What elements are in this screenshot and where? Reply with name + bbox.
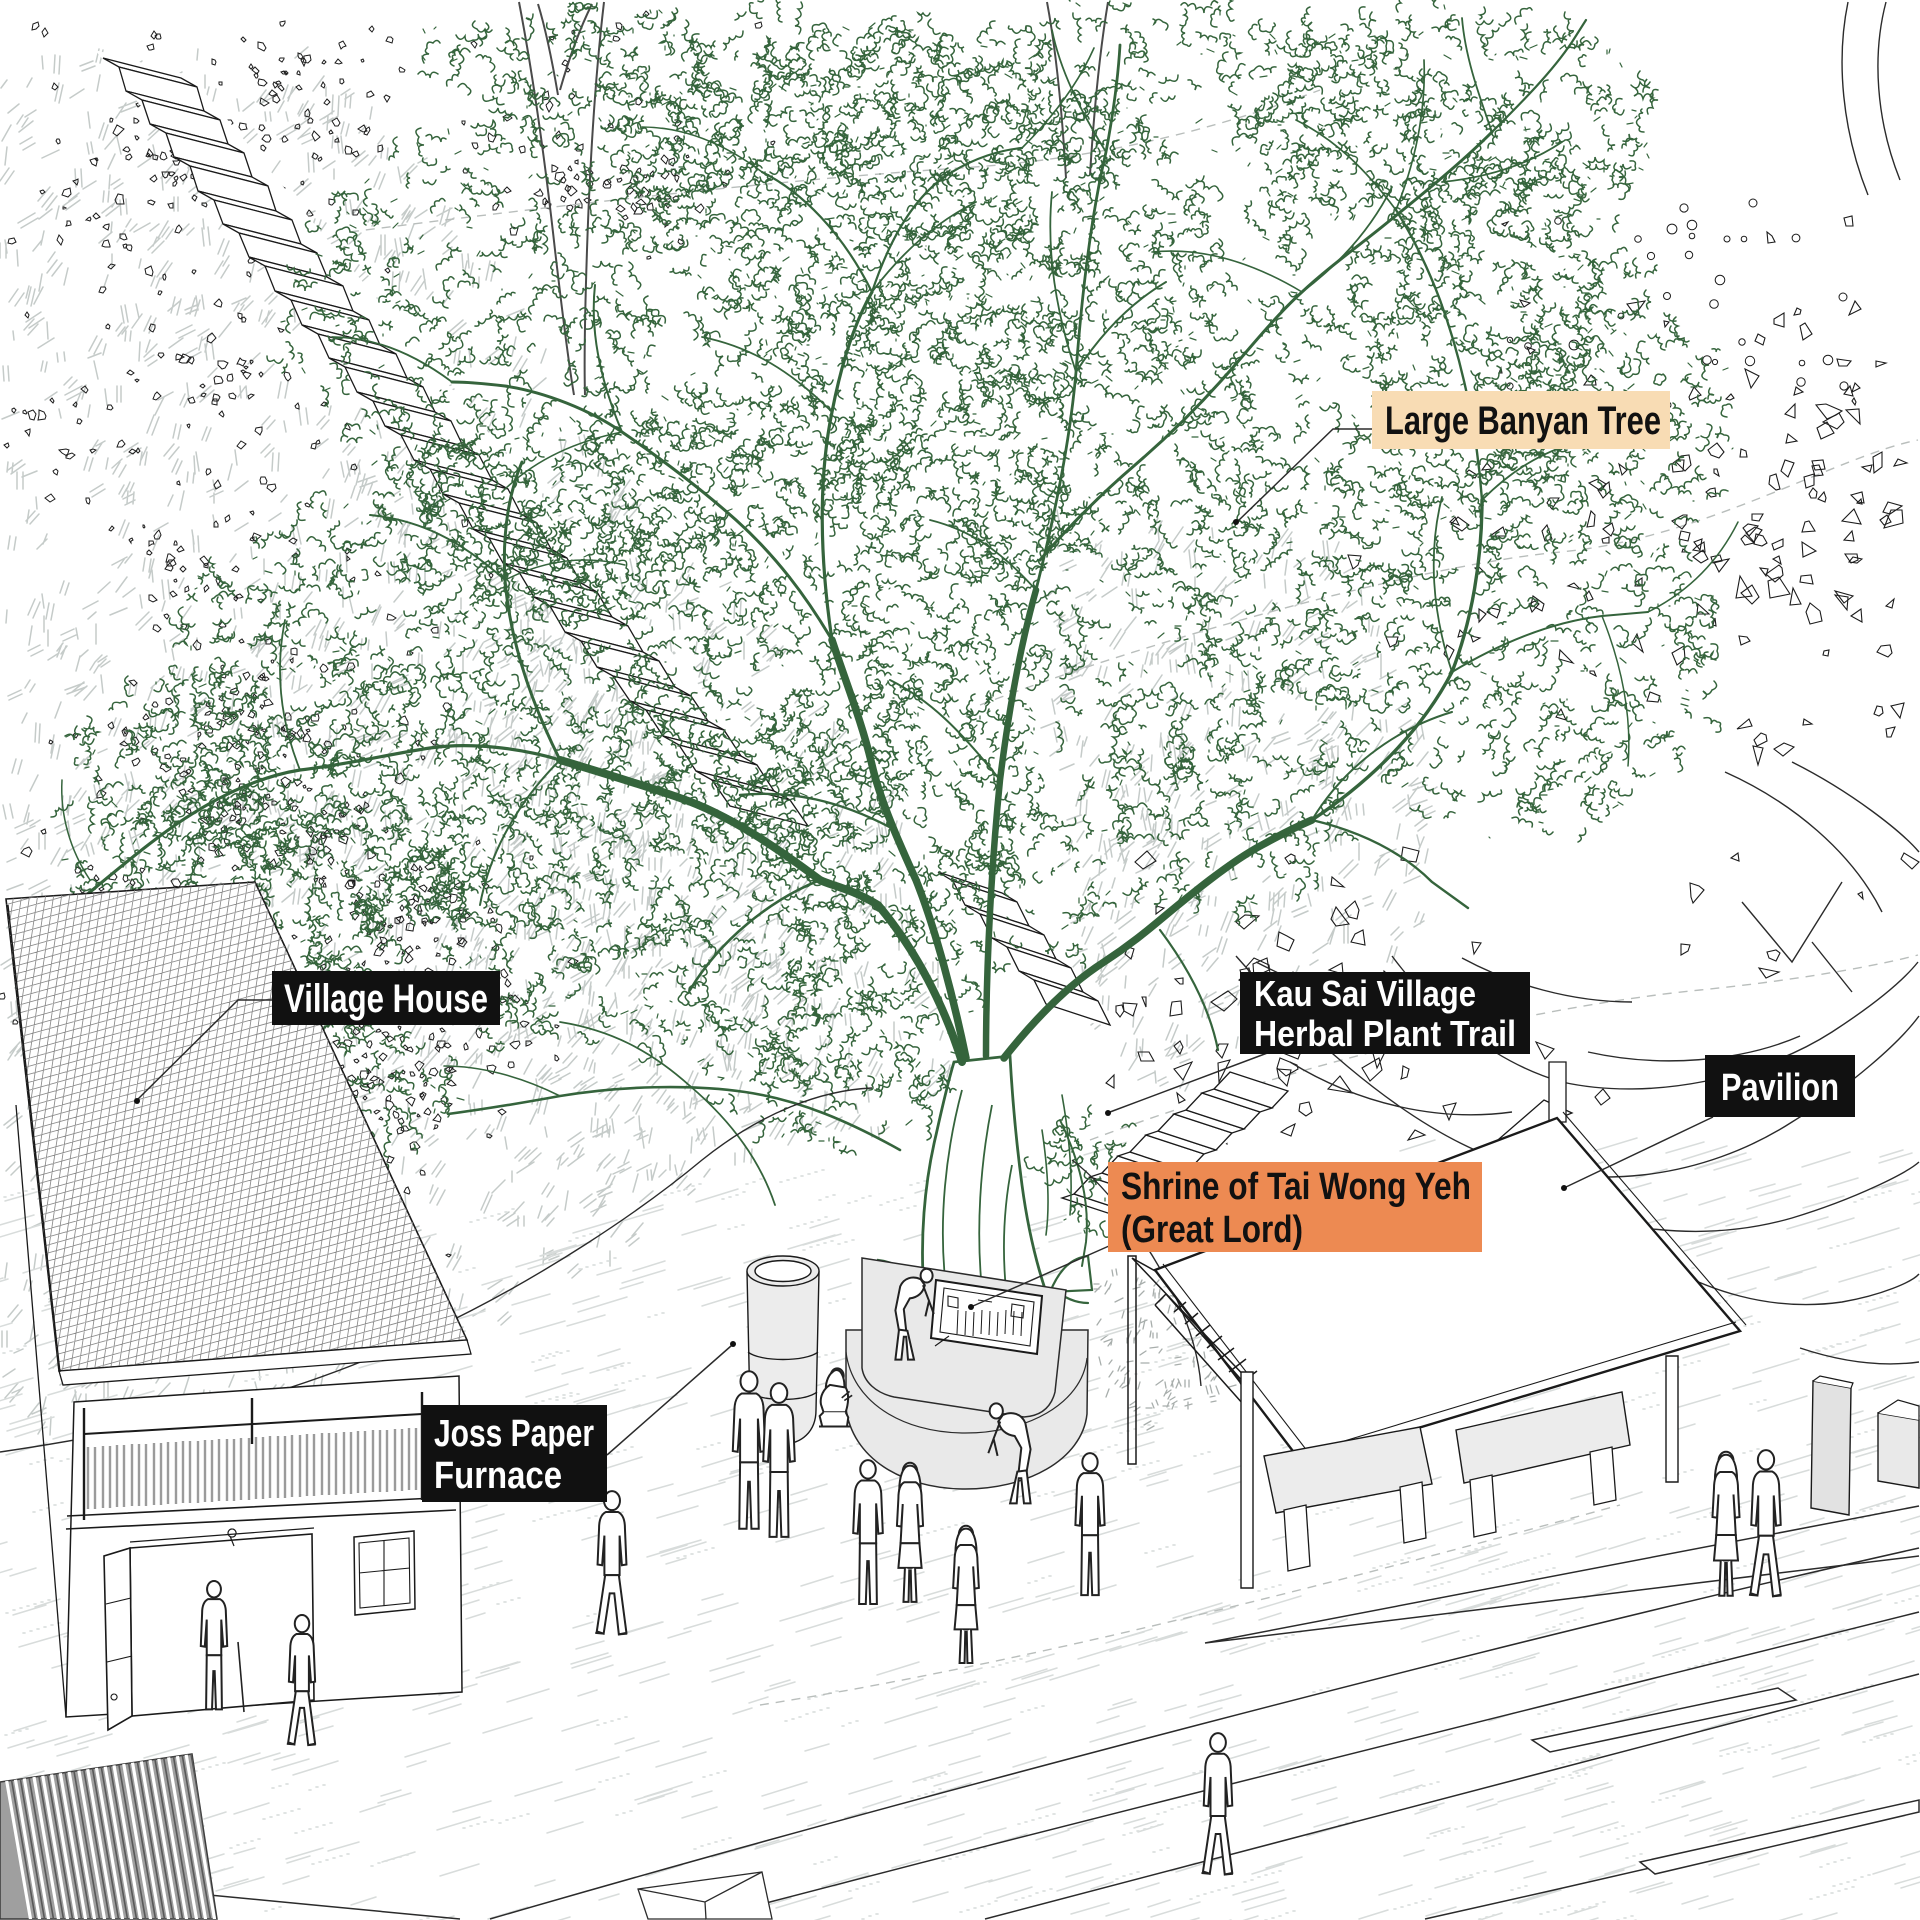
svg-text:Kau Sai Village: Kau Sai Village [1254, 973, 1476, 1014]
svg-text:Large Banyan Tree: Large Banyan Tree [1385, 399, 1661, 443]
svg-text:Village House: Village House [284, 977, 488, 1021]
svg-text:Furnace: Furnace [434, 1455, 562, 1497]
svg-text:Herbal Plant Trail: Herbal Plant Trail [1254, 1013, 1516, 1054]
svg-text:Joss Paper: Joss Paper [434, 1413, 594, 1455]
svg-text:Shrine of Tai Wong Yeh: Shrine of Tai Wong Yeh [1121, 1166, 1471, 1208]
svg-text:(Great Lord): (Great Lord) [1121, 1209, 1303, 1251]
svg-text:Pavilion: Pavilion [1721, 1067, 1839, 1109]
